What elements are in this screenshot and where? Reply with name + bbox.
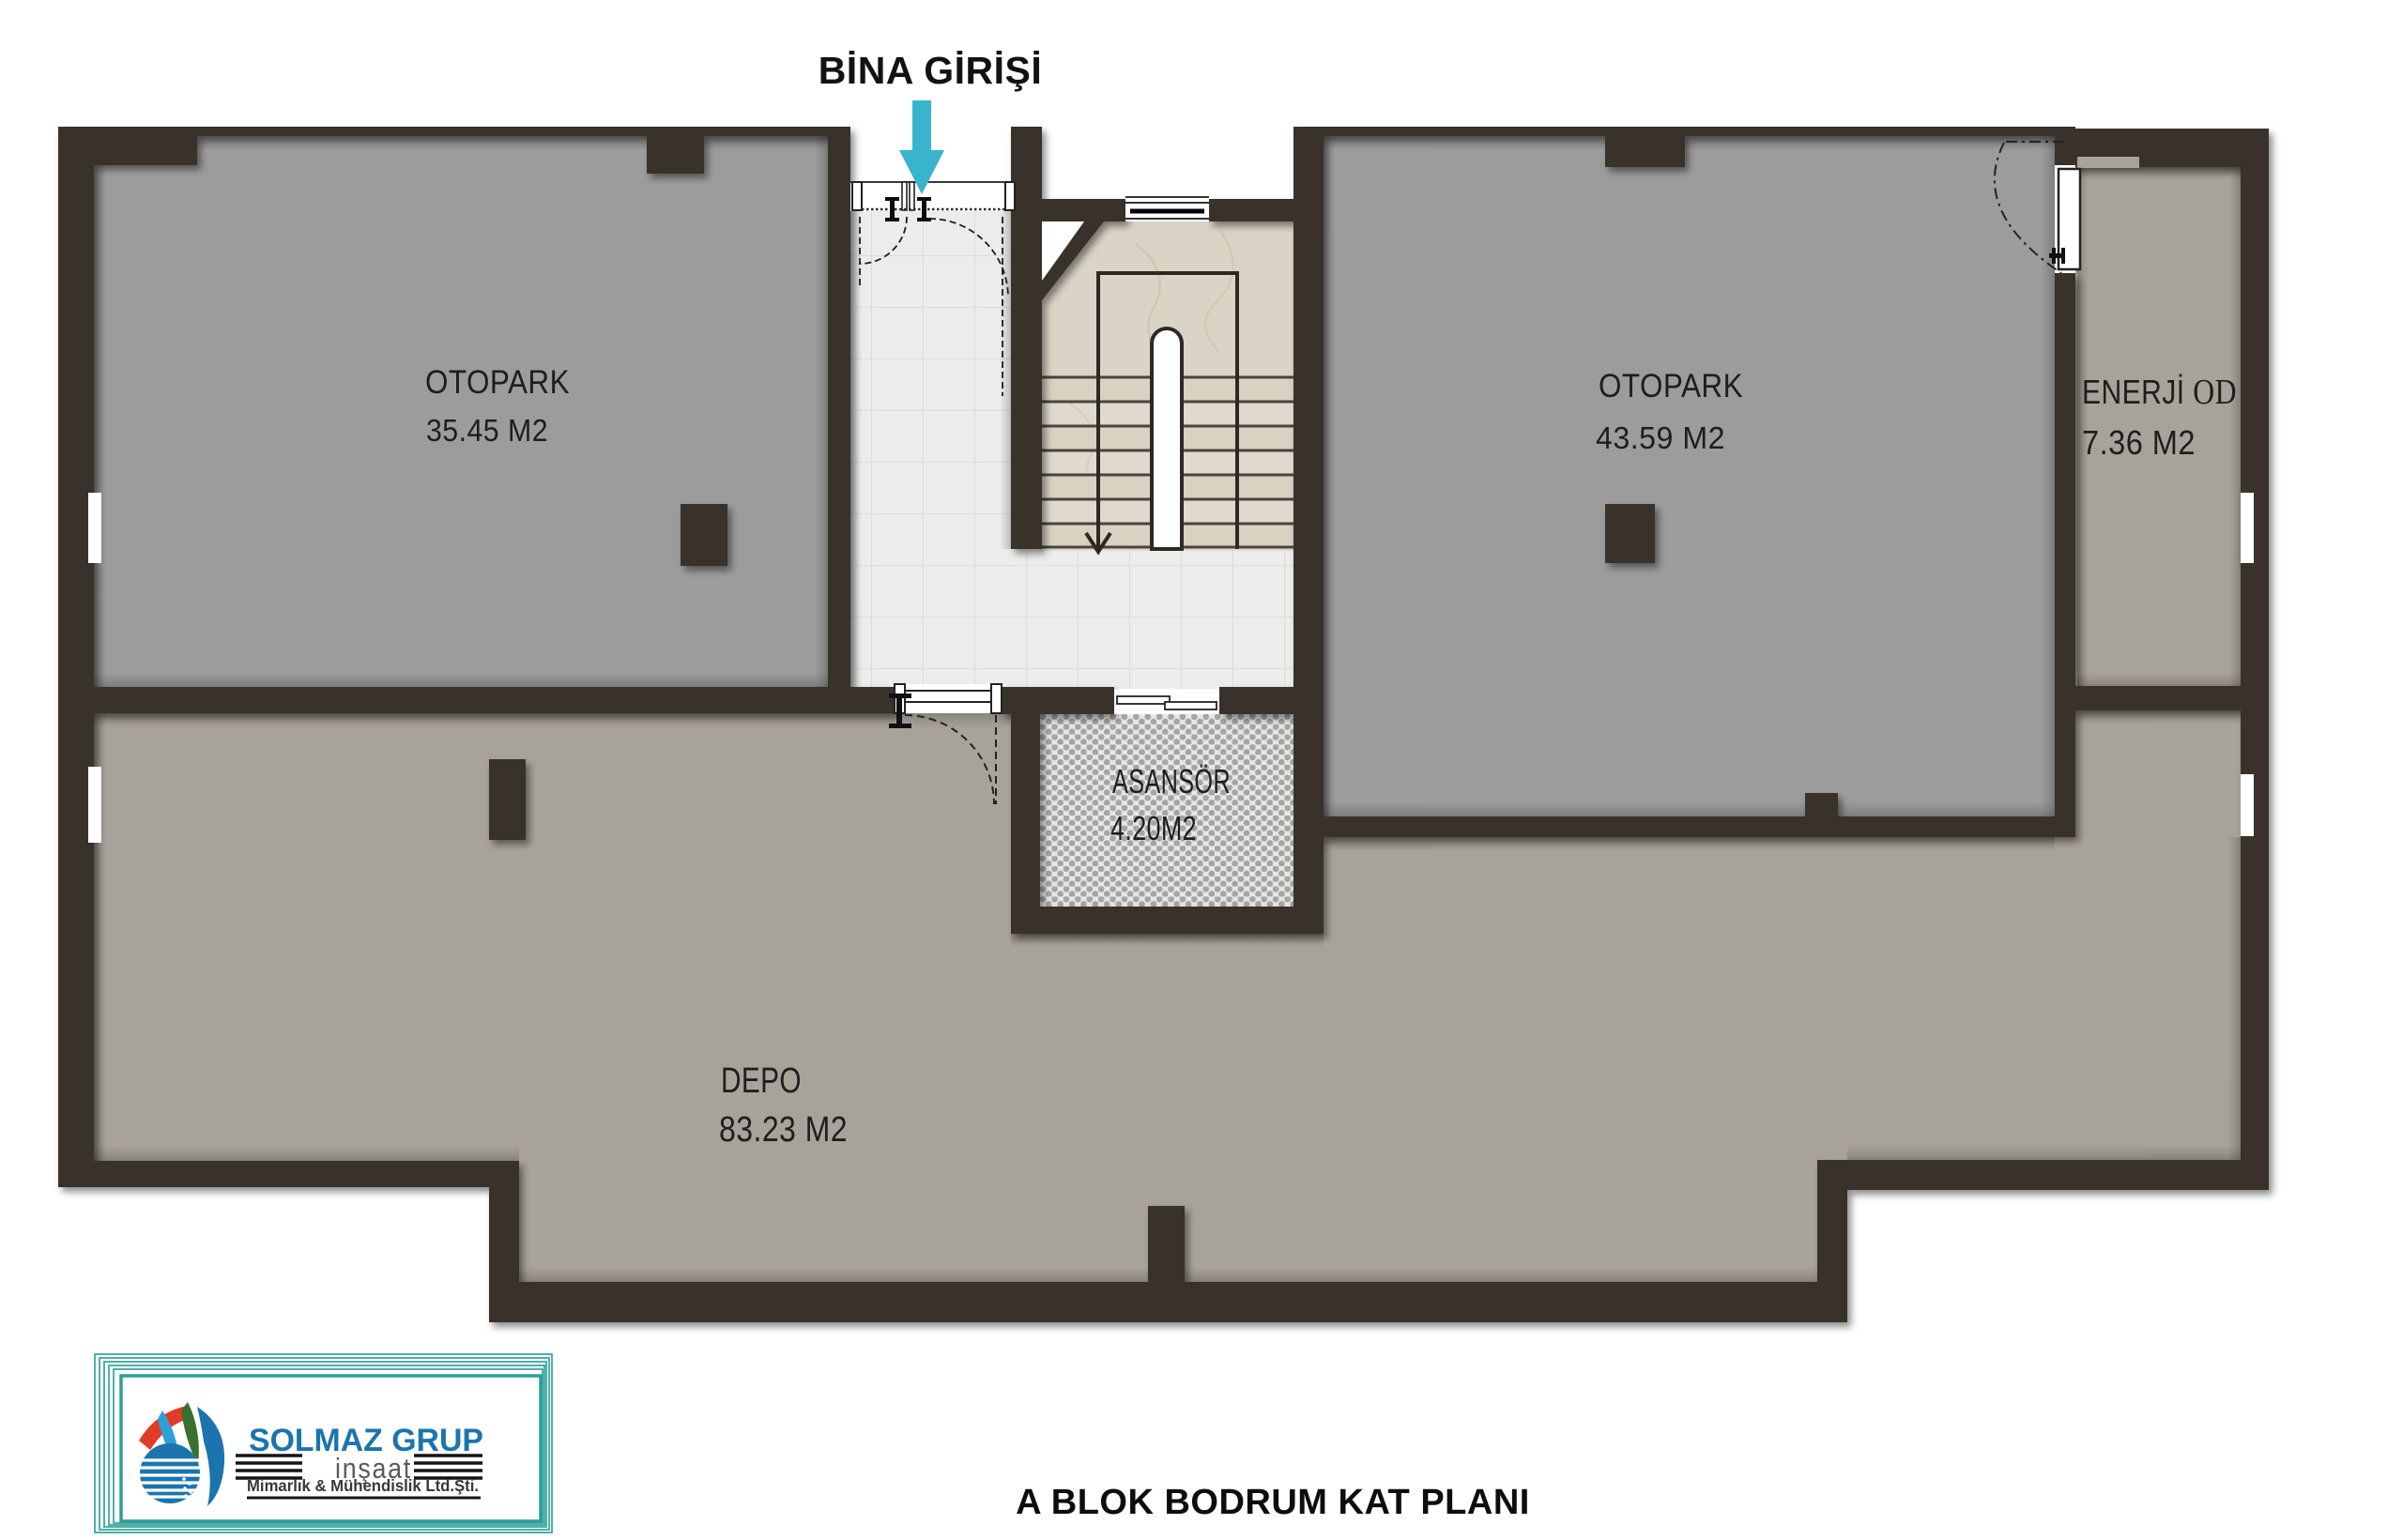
svg-text:83.23 M2: 83.23 M2 [719, 1110, 848, 1150]
svg-text:ENERJİ OD: ENERJİ OD [2082, 373, 2237, 412]
svg-text:4.20M2: 4.20M2 [1110, 809, 1197, 847]
svg-text:ASANSÖR: ASANSÖR [1112, 762, 1231, 800]
svg-text:DEPO: DEPO [721, 1061, 802, 1101]
svg-text:7.36 M2: 7.36 M2 [2082, 423, 2196, 462]
svg-text:35.45 M2: 35.45 M2 [426, 413, 548, 448]
svg-text:OTOPARK: OTOPARK [425, 364, 570, 401]
svg-text:Mimarlık & Mühendislik Ltd.Şti: Mimarlık & Mühendislik Ltd.Şti. [247, 1476, 479, 1495]
svg-text:43.59 M2: 43.59 M2 [1596, 420, 1725, 455]
svg-text:OTOPARK: OTOPARK [1599, 368, 1743, 404]
svg-text:BİNA GİRİŞİ: BİNA GİRİŞİ [819, 49, 1043, 92]
svg-text:A BLOK BODRUM KAT PLANI: A BLOK BODRUM KAT PLANI [1016, 1483, 1530, 1522]
